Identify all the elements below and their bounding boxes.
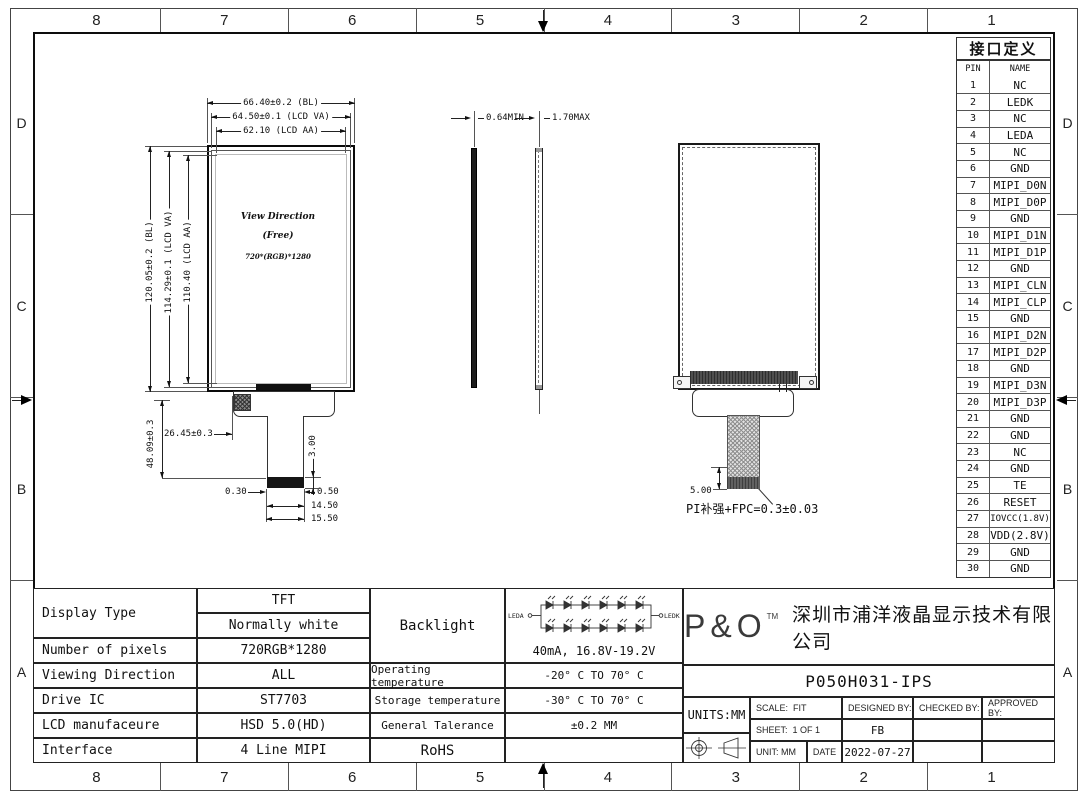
pin-header-name: NAME — [990, 61, 1050, 78]
arrow — [717, 483, 721, 489]
pin-number: 19 — [957, 378, 990, 394]
pin-table: PIN NAME 1 NC 2 LEDK 3 NC — [956, 60, 1051, 578]
designed-by-cell: DESIGNED BY: — [842, 697, 913, 719]
designed-value-cell: FB — [842, 719, 913, 741]
spec-pixels-value: 720RGB*1280 — [197, 638, 370, 663]
pin-table-header: PIN NAME — [957, 61, 1050, 78]
pin-row: 9 GND — [957, 210, 1050, 227]
pin-row: 14 MIPI_CLP — [957, 293, 1050, 310]
zone-number: 7 — [160, 8, 288, 32]
checked-by-cell: CHECKED BY: — [913, 697, 982, 719]
ext-line — [183, 383, 217, 384]
pin-row: 23 NC — [957, 443, 1050, 460]
ledk-label: LEDK — [664, 612, 680, 620]
pin-number: 22 — [957, 428, 990, 444]
pin-row: 19 MIPI_D3N — [957, 377, 1050, 394]
arrow — [167, 381, 171, 387]
spec-manufacture-value: HSD 5.0(HD) — [197, 713, 370, 738]
spec-op-temp-value: -20° C TO 70° C — [505, 663, 683, 688]
pin-row: 26 RESET — [957, 493, 1050, 510]
pin-number: 27 — [957, 511, 990, 527]
pin-table-title: 接口定义 — [956, 37, 1051, 60]
pin-number: 1 — [957, 78, 990, 94]
title-block: Display Type TFT Normally white Number o… — [33, 588, 1055, 763]
dim-gap-left: 0.30 — [224, 487, 248, 497]
spec-tolerance-value: ±0.2 MM — [505, 713, 683, 738]
pin-number: 4 — [957, 128, 990, 144]
pin-name: GND — [990, 311, 1050, 327]
arrow — [311, 471, 315, 477]
ext-line — [164, 151, 212, 152]
pin-name: GND — [990, 411, 1050, 427]
center-arrow-top — [538, 21, 548, 32]
back-fpc-line — [779, 384, 780, 392]
checked-value-cell — [913, 719, 982, 741]
ext-line — [164, 387, 212, 388]
center-arrow-left — [21, 395, 32, 405]
trademark: TM — [767, 612, 779, 621]
unit-cell: UNIT: MM — [750, 741, 807, 763]
checked-date-cell — [913, 741, 982, 763]
pin-name: NC — [990, 78, 1050, 94]
ext-line — [539, 111, 540, 147]
zone-number: 8 — [33, 8, 160, 32]
spec-rohs-label: RoHS — [370, 738, 505, 763]
pin-number: 16 — [957, 328, 990, 344]
pin-number: 26 — [957, 494, 990, 510]
unit-value: MM — [781, 747, 796, 757]
pin-name: IOVCC(1.8V) — [990, 511, 1050, 527]
pin-row: 5 NC — [957, 143, 1050, 160]
pin-row: 30 GND — [957, 560, 1050, 577]
pin-row: 25 TE — [957, 477, 1050, 494]
arrow — [349, 101, 355, 105]
ext-line — [162, 478, 266, 479]
pin-row: 11 MIPI_D1P — [957, 243, 1050, 260]
back-fpc-line — [786, 384, 787, 392]
dim-line — [515, 118, 529, 119]
fpc-tail — [267, 416, 304, 478]
ext-line — [145, 391, 207, 392]
back-tab-hole — [677, 380, 682, 385]
drawing-sheet: 87654321 87654321 DCBA DCBA 接口定义 PIN NAM… — [0, 0, 1088, 800]
fpc-connector — [267, 477, 304, 488]
arrow — [298, 517, 304, 521]
pin-row: 7 MIPI_D0N — [957, 177, 1050, 194]
pin-row: 28 VDD(2.8V) — [957, 527, 1050, 544]
spec-rohs-value — [505, 738, 683, 763]
sheet-cell: SHEET: 1 OF 1 — [750, 719, 842, 741]
pin-name: LEDA — [990, 128, 1050, 144]
pin-row: 27 IOVCC(1.8V) — [957, 510, 1050, 527]
pin-name: MIPI_D3N — [990, 378, 1050, 394]
pin-name: GND — [990, 211, 1050, 227]
arrow — [207, 101, 213, 105]
bonding-strip — [256, 384, 311, 390]
dim-stiffener: 5.00 — [689, 486, 713, 496]
back-fpc-fold — [692, 389, 794, 417]
spec-op-temp-label: Operating temperature — [370, 663, 505, 688]
pin-name: MIPI_D2P — [990, 344, 1050, 360]
arrow — [529, 116, 535, 120]
pin-number: 9 — [957, 211, 990, 227]
dim-fpc-height: 48.09±0.3 — [146, 418, 156, 471]
pin-name: GND — [990, 361, 1050, 377]
dim-thickness-max: 1.70MAX — [551, 113, 591, 123]
pin-row: 18 GND — [957, 360, 1050, 377]
spec-st-temp-value: -30° C TO 70° C — [505, 688, 683, 713]
scale-label: SCALE: — [756, 703, 788, 713]
pin-number: 24 — [957, 461, 990, 477]
pin-name: LEDK — [990, 94, 1050, 110]
pin-number: 15 — [957, 311, 990, 327]
ext-line — [474, 111, 475, 147]
dim-top-bl: 66.40±0.2 (BL) — [241, 98, 321, 108]
ext-line — [145, 146, 207, 147]
side-view-cap — [536, 148, 542, 152]
side-view-glass — [471, 148, 477, 388]
date-label-cell: DATE — [807, 741, 842, 763]
pin-number: 8 — [957, 194, 990, 210]
pin-number: 2 — [957, 94, 990, 110]
scale-value: FIT — [793, 703, 807, 713]
pin-number: 12 — [957, 261, 990, 277]
sheet-value: 1 OF 1 — [793, 725, 821, 735]
company-name: 深圳市浦洋液晶显示技术有限公司 — [792, 600, 1054, 654]
back-fpc-stiffener — [727, 477, 760, 489]
pin-header-pin: PIN — [957, 61, 990, 78]
view-free-label: (Free) — [213, 231, 343, 241]
zone-number: 2 — [799, 763, 927, 791]
part-number-cell: P050H031-IPS — [683, 665, 1055, 697]
zone-letter: D — [1057, 32, 1078, 214]
resolution-label: 720*(RGB)*1280 — [213, 252, 343, 261]
arrow — [211, 115, 217, 119]
unit-label: UNIT: — [756, 747, 779, 757]
pin-name: TE — [990, 478, 1050, 494]
pin-name: MIPI_D2N — [990, 328, 1050, 344]
zone-number: 4 — [544, 8, 672, 32]
zone-letter: A — [10, 580, 33, 763]
arrow — [167, 151, 171, 157]
pin-name: MIPI_CLP — [990, 294, 1050, 310]
zone-number: 7 — [160, 763, 288, 791]
pin-number: 6 — [957, 161, 990, 177]
fpc-hatch-pad — [234, 394, 251, 411]
backlight-current: 40mA, 16.8V-19.2V — [533, 644, 656, 658]
spec-backlight-value: LEDA LEDK 40mA, 16.8V-19.2V — [505, 588, 683, 663]
pin-number: 17 — [957, 344, 990, 360]
back-bonding-strip — [690, 371, 798, 384]
pin-name: NC — [990, 111, 1050, 127]
zone-number: 1 — [927, 8, 1055, 32]
pin-number: 23 — [957, 444, 990, 460]
pin-row: 20 MIPI_D3P — [957, 393, 1050, 410]
zone-letter: D — [10, 32, 33, 214]
arrow — [160, 400, 164, 406]
spec-display-type-value1: TFT — [197, 588, 370, 613]
zone-number: 1 — [927, 763, 1055, 791]
zone-number: 5 — [416, 8, 544, 32]
pin-row: 13 MIPI_CLN — [957, 277, 1050, 294]
pin-row: 12 GND — [957, 260, 1050, 277]
arrow — [148, 146, 152, 152]
pin-name: MIPI_D1N — [990, 228, 1050, 244]
pin-number: 20 — [957, 394, 990, 410]
spec-manufacture-label: LCD manufaceure — [33, 713, 197, 738]
dim-left-va: 114.29±0.1 (LCD VA) — [164, 209, 174, 316]
pin-number: 5 — [957, 144, 990, 160]
units-cell: UNITS:MM — [683, 697, 750, 733]
zone-letter: C — [1057, 214, 1078, 397]
center-arrow-right — [1056, 395, 1067, 405]
dim-tail-w: 15.50 — [310, 514, 339, 524]
spec-viewing-value: ALL — [197, 663, 370, 688]
spec-st-temp-label: Storage temperature — [370, 688, 505, 713]
backlight-led-diagram: LEDA LEDK — [507, 592, 681, 638]
pin-row: 15 GND — [957, 310, 1050, 327]
zone-letter: A — [1057, 580, 1078, 763]
pin-number: 29 — [957, 544, 990, 560]
pin-name: MIPI_D1P — [990, 244, 1050, 260]
back-tab-hole — [809, 380, 814, 385]
pin-row: 6 GND — [957, 160, 1050, 177]
spec-display-type-value2: Normally white — [197, 613, 370, 638]
projection-symbol — [685, 735, 748, 761]
zone-number: 2 — [799, 8, 927, 32]
arrow — [186, 377, 190, 383]
side-view-tick-line — [538, 150, 539, 388]
sheet-label: SHEET: — [756, 725, 788, 735]
arrow — [266, 517, 272, 521]
dim-line — [478, 118, 484, 119]
front-view-outline-aa — [215, 154, 347, 384]
dim-top-aa: 62.10 (LCD AA) — [241, 126, 321, 136]
pin-row: 22 GND — [957, 427, 1050, 444]
pin-name: MIPI_D3P — [990, 394, 1050, 410]
dim-line — [162, 400, 163, 478]
pin-row: 24 GND — [957, 460, 1050, 477]
pin-row: 2 LEDK — [957, 93, 1050, 110]
approved-value-cell — [982, 719, 1055, 741]
pin-number: 10 — [957, 228, 990, 244]
pin-row: 4 LEDA — [957, 127, 1050, 144]
spec-backlight-label: Backlight — [370, 588, 505, 663]
ext-line — [712, 489, 727, 490]
scale-cell: SCALE: FIT — [750, 697, 842, 719]
pin-row: 8 MIPI_D0P — [957, 193, 1050, 210]
side-view-cap — [536, 385, 542, 389]
pin-number: 28 — [957, 528, 990, 544]
back-tab-right — [799, 376, 817, 389]
pin-row: 1 NC — [957, 78, 1050, 94]
pin-row: 16 MIPI_D2N — [957, 327, 1050, 344]
spec-tolerance-label: General Talerance — [370, 713, 505, 738]
pin-number: 30 — [957, 561, 990, 577]
dim-connector-w: 14.50 — [310, 501, 339, 511]
pin-name: GND — [990, 544, 1050, 560]
zone-number: 6 — [288, 8, 416, 32]
zone-number: 5 — [416, 763, 544, 791]
zone-number: 4 — [544, 763, 672, 791]
dim-line — [247, 492, 260, 493]
pin-name: VDD(2.8V) — [990, 528, 1050, 544]
pin-row: 3 NC — [957, 110, 1050, 127]
pin-name: MIPI_CLN — [990, 278, 1050, 294]
dim-fpc-offset: 26.45±0.3 — [163, 429, 214, 439]
spec-interface-label: Interface — [33, 738, 197, 763]
view-direction-label: View Direction — [213, 212, 343, 222]
back-fpc-tail — [727, 415, 760, 478]
spec-drive-value: ST7703 — [197, 688, 370, 713]
pin-row: 29 GND — [957, 543, 1050, 560]
dim-line — [544, 118, 550, 119]
center-arrow-bottom — [538, 763, 548, 774]
dim-top-va: 64.50±0.1 (LCD VA) — [230, 112, 332, 122]
part-number: P050H031-IPS — [805, 672, 933, 691]
pin-number: 21 — [957, 411, 990, 427]
zone-number: 3 — [671, 8, 799, 32]
arrow — [226, 432, 232, 436]
zone-letter: B — [10, 397, 33, 580]
arrow — [311, 488, 315, 494]
pin-name: MIPI_D0P — [990, 194, 1050, 210]
pin-number: 14 — [957, 294, 990, 310]
arrow — [298, 504, 304, 508]
pin-table-body: 1 NC 2 LEDK 3 NC 4 LEDA — [957, 78, 1050, 577]
pin-number: 11 — [957, 244, 990, 260]
company-logo: P&OTM — [684, 608, 778, 645]
front-view-text: View Direction (Free) 720*(RGB)*1280 — [213, 212, 343, 261]
pin-number: 13 — [957, 278, 990, 294]
pin-name: GND — [990, 161, 1050, 177]
arrow — [345, 115, 351, 119]
dim-left-aa: 110.40 (LCD AA) — [183, 219, 193, 304]
zone-number: 3 — [671, 763, 799, 791]
arrow — [465, 116, 471, 120]
pin-number: 18 — [957, 361, 990, 377]
back-view-tape-ticks — [682, 147, 816, 386]
company-cell: P&OTM 深圳市浦洋液晶显示技术有限公司 — [683, 588, 1055, 665]
pin-name: NC — [990, 444, 1050, 460]
side-view-module — [535, 148, 543, 390]
zone-letter: C — [10, 214, 33, 397]
zone-number: 6 — [288, 763, 416, 791]
arrow — [216, 129, 222, 133]
spec-pixels-label: Number of pixels — [33, 638, 197, 663]
zone-letter: B — [1057, 397, 1078, 580]
side-view-fpc-line — [539, 390, 540, 414]
leda-label: LEDA — [508, 612, 524, 620]
pin-row: 10 MIPI_D1N — [957, 227, 1050, 244]
dim-left-bl: 120.05±0.2 (BL) — [145, 219, 155, 304]
approved-by-cell: APPROVED BY: — [982, 697, 1055, 719]
pin-number: 3 — [957, 111, 990, 127]
pin-name: RESET — [990, 494, 1050, 510]
arrow — [148, 386, 152, 392]
pin-name: MIPI_D0N — [990, 178, 1050, 194]
arrow — [186, 155, 190, 161]
arrow — [260, 490, 266, 494]
date-value-cell: 2022-07-27 — [842, 741, 913, 763]
pin-name: NC — [990, 144, 1050, 160]
arrow — [717, 467, 721, 473]
pin-number: 25 — [957, 478, 990, 494]
pin-name: GND — [990, 461, 1050, 477]
spec-display-type-label: Display Type — [33, 588, 197, 638]
dim-line — [451, 118, 465, 119]
pin-number: 7 — [957, 178, 990, 194]
pin-name: GND — [990, 561, 1050, 577]
fpc-note: PI补强+FPC=0.3±0.03 — [686, 500, 818, 517]
zone-number: 8 — [33, 763, 160, 791]
back-tab-left — [673, 376, 691, 389]
pin-row: 17 MIPI_D2P — [957, 343, 1050, 360]
dim-connector-h: 3.00 — [308, 433, 318, 459]
spec-drive-label: Drive IC — [33, 688, 197, 713]
projection-symbol-cell — [683, 733, 750, 763]
pin-name: GND — [990, 261, 1050, 277]
arrow — [267, 504, 273, 508]
arrow — [340, 129, 346, 133]
pin-name: GND — [990, 428, 1050, 444]
approved-date-cell — [982, 741, 1055, 763]
spec-viewing-label: Viewing Direction — [33, 663, 197, 688]
spec-interface-value: 4 Line MIPI — [197, 738, 370, 763]
pin-row: 21 GND — [957, 410, 1050, 427]
